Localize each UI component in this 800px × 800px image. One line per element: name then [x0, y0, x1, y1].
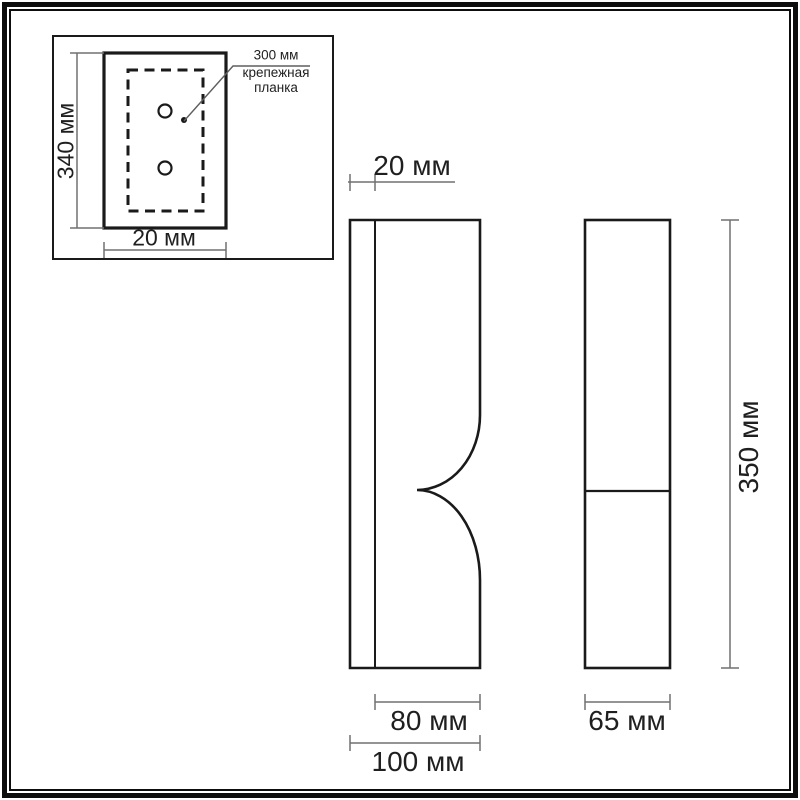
leader-label-300mm: 300 мм	[254, 48, 299, 62]
dim-label-65mm: 65 мм	[588, 707, 665, 735]
dim-label-top-20mm: 20 мм	[373, 152, 450, 180]
technical-drawing-page: { "drawing": { "type": "product dimensio…	[0, 0, 800, 800]
dim-label-inset-20mm: 20 мм	[132, 227, 196, 250]
mounting-plate-outline	[104, 53, 226, 228]
screw-hole-bottom	[159, 162, 172, 175]
front-view-outline	[585, 220, 670, 668]
dim-label-100mm: 100 мм	[372, 748, 465, 776]
dim-label-340mm: 340 мм	[55, 103, 78, 179]
front-view	[585, 220, 739, 710]
leader-caption-mounting-bar: крепежная планка	[243, 66, 310, 96]
side-profile-outline	[350, 220, 480, 668]
dimension-drawing-canvas	[0, 0, 800, 800]
side-profile-view	[348, 174, 480, 751]
dim-label-80mm: 80 мм	[390, 707, 467, 735]
screw-hole-top	[159, 105, 172, 118]
dim-label-350mm: 350 мм	[735, 401, 763, 494]
